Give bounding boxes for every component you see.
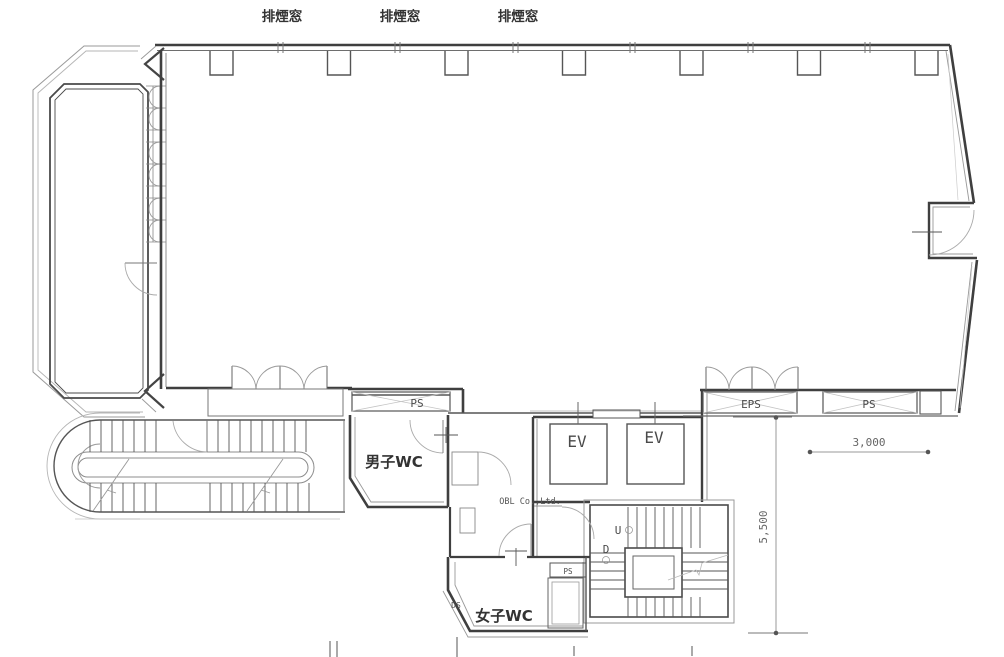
right-wall-upper [950, 45, 974, 203]
stair-treads-left [590, 553, 625, 589]
west-door-arc [125, 263, 157, 295]
escalator-arrow-ticks [107, 490, 270, 493]
column-stubs [210, 51, 938, 75]
watermark-text: OBL Co.,Ltd. [499, 497, 560, 507]
escalator-treads-top [90, 420, 306, 452]
corridor-closet [452, 452, 478, 485]
floorplan-drawing: 排煙窓 排煙窓 排煙窓 [0, 0, 1004, 657]
door-niche-walls [929, 203, 977, 258]
womens-wc-room: PS DS 女子WC [443, 524, 590, 637]
mens-wc-label: 男子WC [365, 453, 423, 471]
mens-wc-door-arc [410, 420, 443, 453]
escalator-door-arc [173, 421, 207, 452]
right-corner-post [920, 391, 941, 414]
dim-5500-dot-top [774, 415, 779, 420]
dim-3000-dot-right [926, 450, 931, 455]
vestibule-box [208, 389, 343, 416]
ps-left-label: PS [410, 397, 423, 410]
stair-treads-top [628, 507, 700, 548]
ps-small-label: PS [563, 567, 573, 576]
stair-outer-wall [584, 500, 734, 623]
dim-3000-dot-left [808, 450, 813, 455]
escalator-handrail-inner [78, 458, 308, 477]
door-niche-inner [933, 207, 973, 254]
right-wall-lower-inner [955, 262, 972, 411]
mens-wc-room: 男子WC [350, 415, 458, 507]
annex-outer-shell-inner [38, 51, 143, 412]
stair-treads-right [682, 553, 728, 589]
escalator [47, 413, 345, 519]
stair-down-label: D [603, 543, 610, 556]
escalator-treads-bottom [90, 483, 309, 512]
ds-label: DS [451, 601, 461, 610]
ev-label-2: EV [644, 428, 664, 447]
annex-room-wall-inner [55, 89, 143, 393]
womens-wc-partition-inner [552, 582, 579, 624]
double-door-leaves-left [232, 366, 327, 389]
double-door-leaves-right [706, 367, 798, 390]
floorplan-page: 排煙窓 排煙窓 排煙窓 [0, 0, 1004, 657]
dim-5500-dot-bottom [774, 631, 779, 636]
stair-core-outer [625, 548, 682, 597]
top-wall [155, 42, 950, 75]
stair-break-line [668, 555, 728, 580]
ev-label-1: EV [567, 432, 587, 451]
right-wall [912, 45, 977, 413]
stair-up-marker [626, 527, 633, 534]
womens-wc-partition [548, 578, 583, 628]
right-corridor: EPS PS [683, 367, 958, 416]
left-annex [33, 46, 166, 417]
south-wall-left: PS [166, 366, 463, 416]
window-joint-ticks [278, 42, 870, 53]
annex-room-wall-outer [50, 84, 148, 398]
corridor-fixture [460, 508, 475, 533]
stair-up-label: U [615, 524, 622, 537]
smoke-window-label-1: 排煙窓 [262, 8, 303, 25]
stair-core-inner [633, 556, 674, 589]
dim-3000-label: 3,000 [852, 436, 885, 449]
escalator-handrail-outer [72, 452, 314, 483]
smoke-window-label-2: 排煙窓 [380, 8, 421, 25]
eps-label: EPS [741, 398, 761, 411]
smoke-window-label-3: 排煙窓 [498, 8, 539, 25]
dimensions: 3,000 5,500 [733, 415, 930, 635]
escalator-boundary [54, 420, 345, 512]
womens-wc-entry-tick [505, 548, 527, 566]
main-room-west-wall [125, 50, 166, 389]
bottom-grid-ticks [330, 637, 692, 657]
dim-5500-label: 5,500 [757, 510, 770, 543]
stair-block: U D [562, 500, 734, 623]
watermark: OBL Co.,Ltd. [499, 497, 562, 507]
womens-wc-label: 女子WC [475, 607, 533, 625]
ps-right-label: PS [862, 398, 875, 411]
corridor-door-arc [478, 452, 511, 485]
grid-tick-lines [330, 637, 692, 657]
mens-wc-door-centerline [434, 427, 458, 443]
annex-bottom-joint-chevron-thin [142, 399, 156, 412]
stair-treads-bottom [628, 597, 700, 617]
escalator-direction-lines [93, 459, 283, 511]
louver-chords [146, 86, 166, 242]
smoke-window-labels: 排煙窓 排煙窓 排煙窓 [262, 8, 539, 25]
escalator-outer-shell [47, 413, 140, 519]
